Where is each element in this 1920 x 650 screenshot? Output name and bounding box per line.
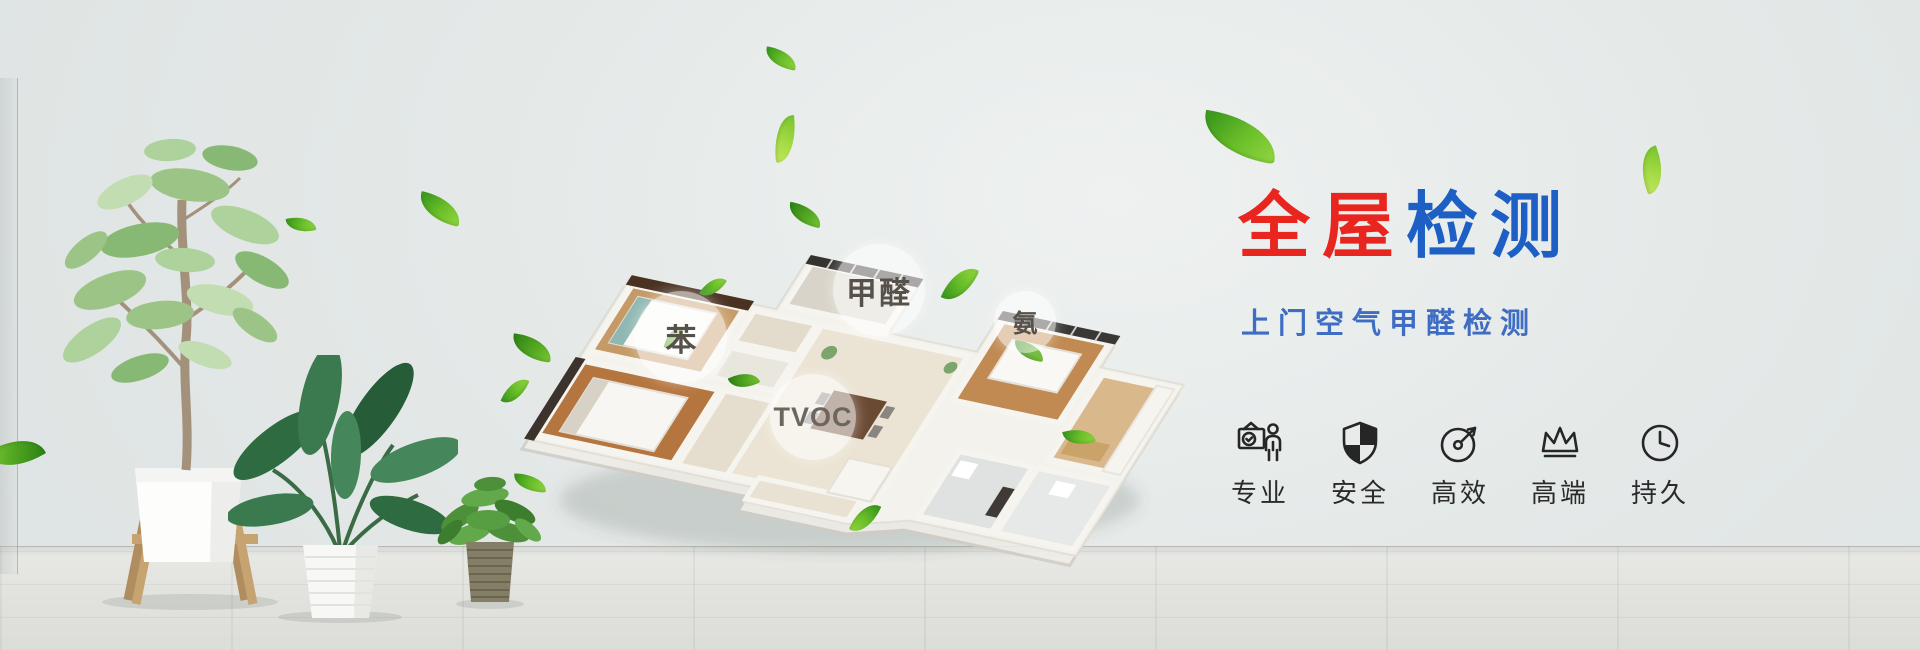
gauge-arrow-icon xyxy=(1437,420,1483,466)
feature-label: 安全 xyxy=(1331,473,1389,510)
bubble-tvoc: TVOC xyxy=(770,374,856,460)
leaf-icon xyxy=(764,46,799,70)
feature-lasting: 持久 xyxy=(1624,420,1696,510)
feature-label: 高端 xyxy=(1531,473,1589,510)
feature-label: 持久 xyxy=(1631,473,1689,510)
title-blue-part: 检测 xyxy=(1406,187,1574,267)
leaf-icon xyxy=(772,115,798,163)
bubble-tvoc-label: TVOC xyxy=(773,402,852,433)
bubble-ammonia: 氨 xyxy=(994,291,1056,353)
bubble-formaldehyde: 甲醛 xyxy=(833,244,925,336)
feature-label: 专业 xyxy=(1231,473,1289,510)
tree-foliage xyxy=(56,137,294,388)
feature-highend: 高端 xyxy=(1524,420,1596,510)
shield-icon xyxy=(1337,420,1383,466)
hero-banner: 苯 甲醛 氨 TVOC 全屋检测 上门空气甲醛检测 专 xyxy=(0,0,1920,650)
feature-list: 专业 安全 高效 xyxy=(1224,420,1696,510)
crown-icon xyxy=(1537,420,1583,466)
bubble-formaldehyde-label: 甲醛 xyxy=(846,268,912,313)
bubble-ammonia-label: 氨 xyxy=(1012,304,1037,340)
title-red-part: 全屋 xyxy=(1238,187,1406,267)
bubble-benzene-label: 苯 xyxy=(666,315,697,360)
bird-of-paradise-plant xyxy=(228,355,458,625)
leaf-icon xyxy=(1633,145,1671,195)
page-subtitle: 上门空气甲醛检测 xyxy=(1241,300,1537,342)
feature-safe: 安全 xyxy=(1324,420,1396,510)
feature-label: 高效 xyxy=(1431,473,1489,510)
wall-corner-shadow xyxy=(0,78,18,574)
leaf-icon xyxy=(1199,110,1281,165)
bubble-benzene: 苯 xyxy=(635,291,727,383)
certificate-person-icon xyxy=(1237,420,1283,466)
page-title: 全屋检测 xyxy=(1238,190,1574,266)
clock-icon xyxy=(1637,420,1683,466)
feature-professional: 专业 xyxy=(1224,420,1296,510)
leaf-icon xyxy=(416,191,465,227)
feature-efficient: 高效 xyxy=(1424,420,1496,510)
